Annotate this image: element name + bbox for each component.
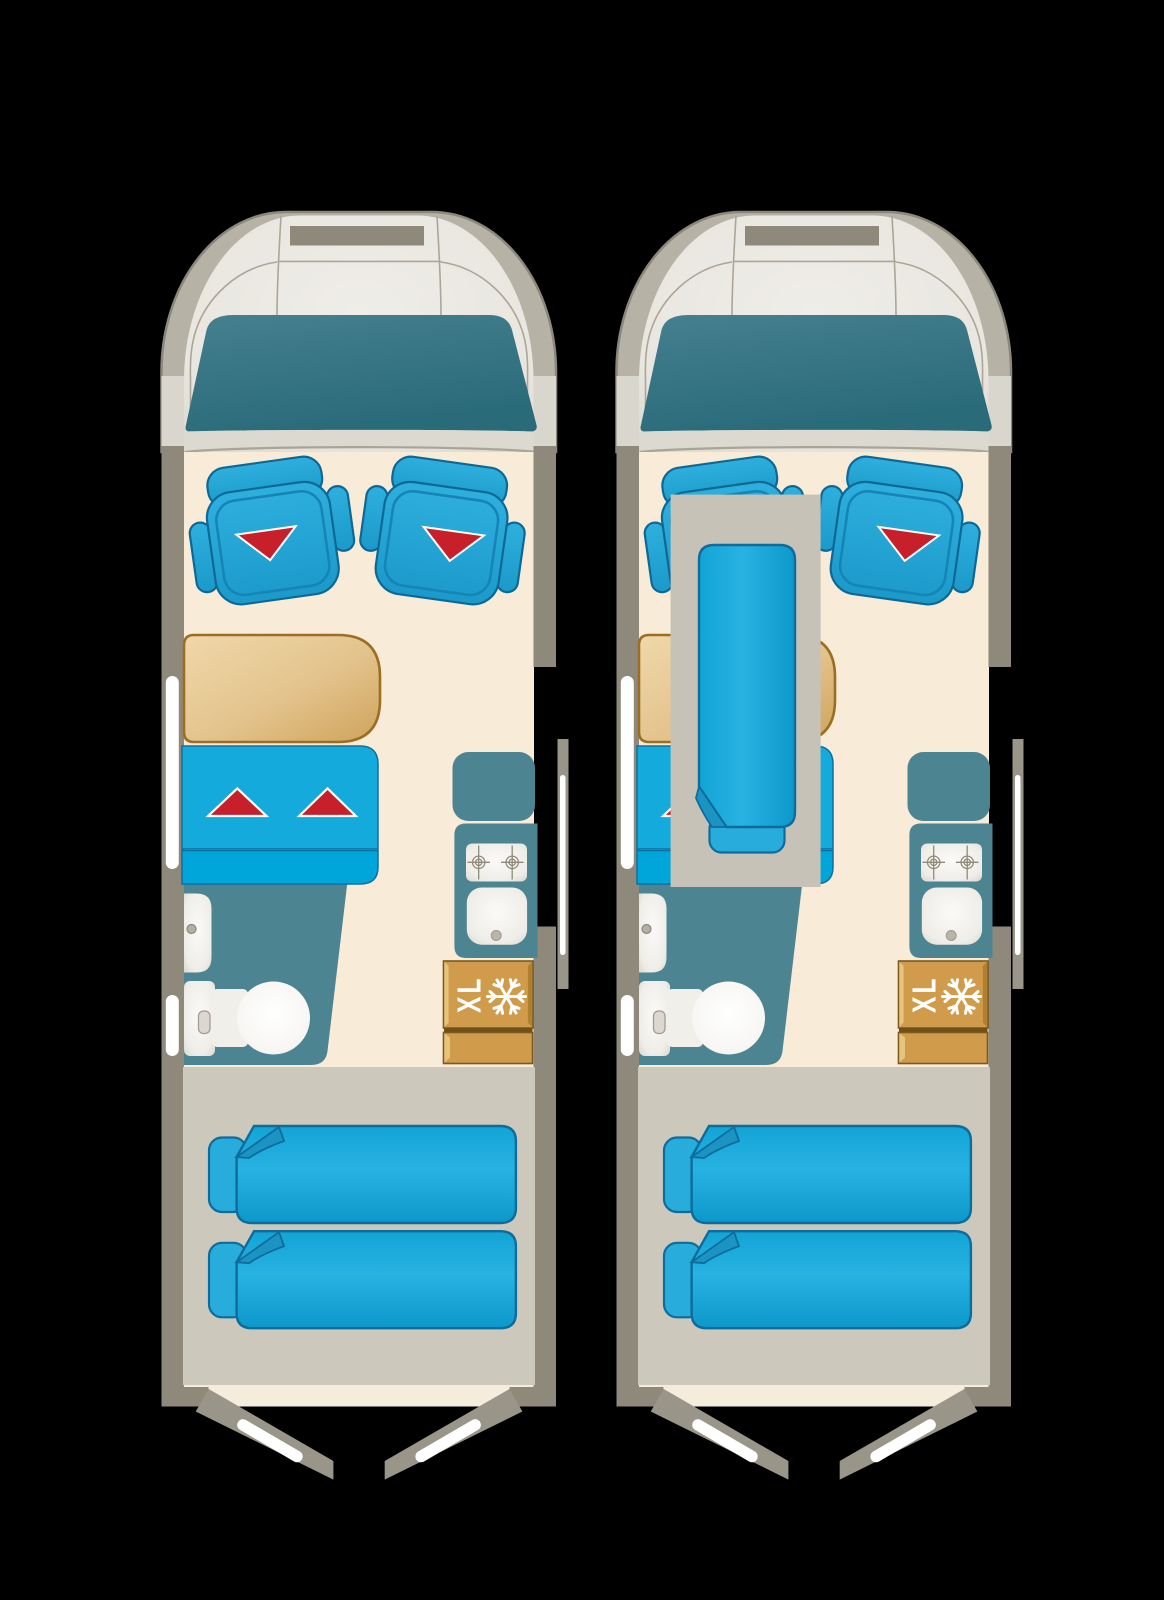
svg-text:XL: XL [452,975,488,1013]
svg-text:XL: XL [907,975,943,1013]
